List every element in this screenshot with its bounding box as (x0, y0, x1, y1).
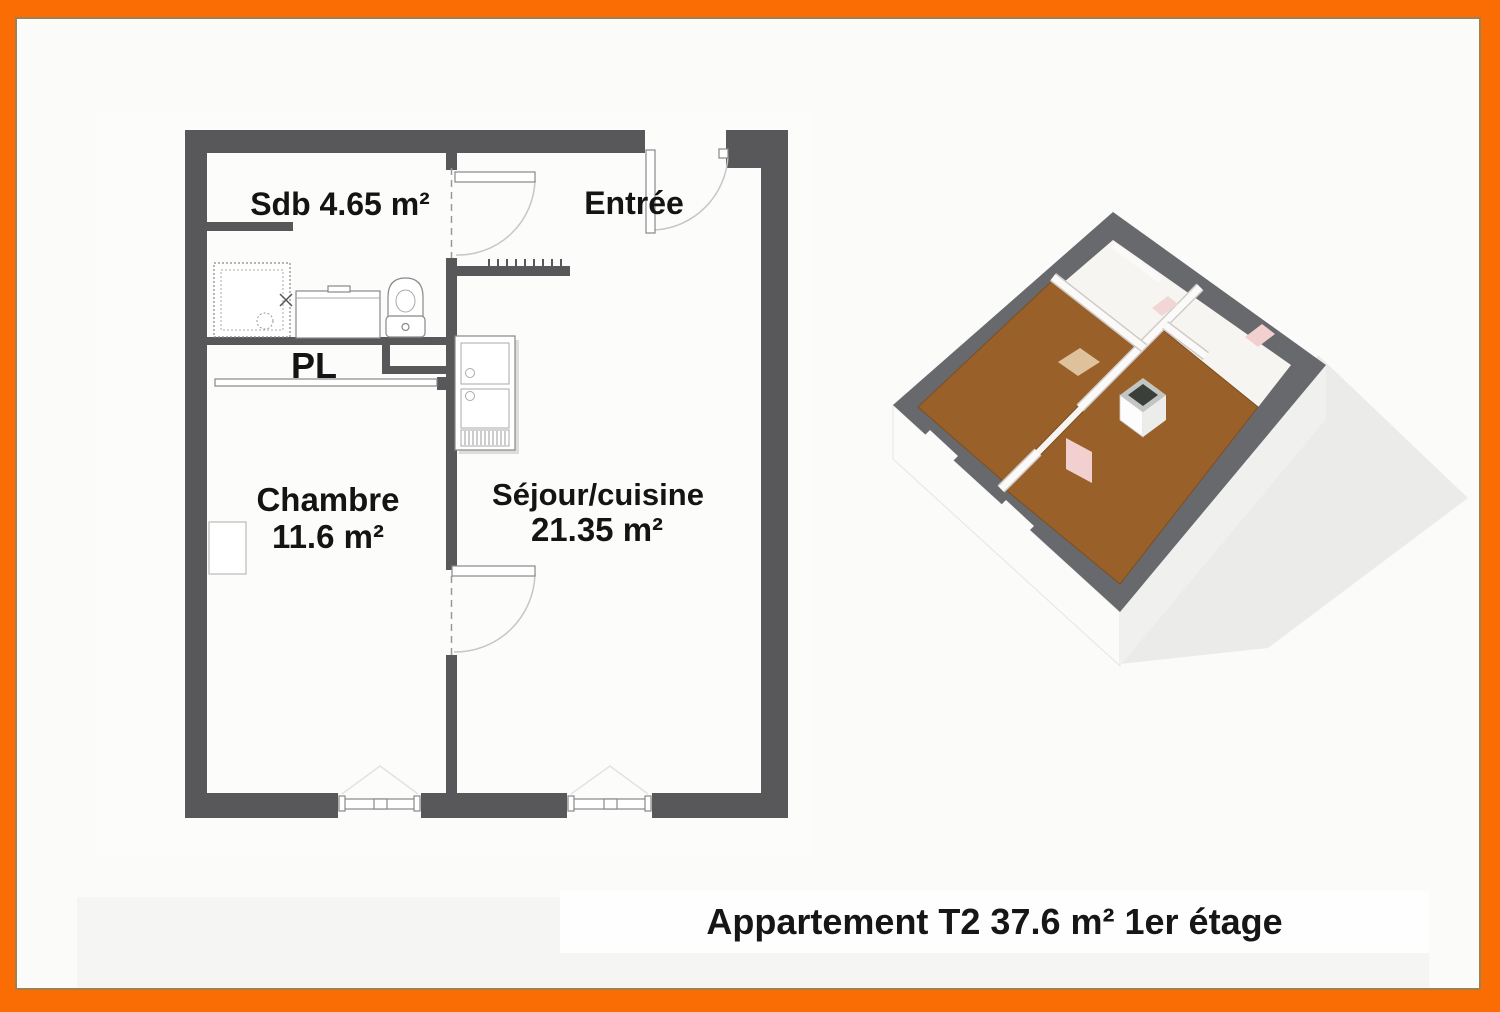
room-area-sejour: 21.35 m² (531, 511, 663, 548)
room-label-sejour: Séjour/cuisine (492, 477, 704, 512)
room-label-chambre: Chambre (256, 481, 399, 518)
toilet-icon (386, 278, 425, 337)
shower-icon (214, 263, 292, 337)
room-area-chambre: 11.6 m² (272, 518, 384, 555)
radiator-icon (209, 522, 246, 574)
fridge-icon (455, 336, 519, 454)
room-label-sdb: Sdb 4.65 m² (250, 186, 430, 222)
room-label-entree: Entrée (584, 185, 684, 221)
room-label-pl: PL (291, 345, 337, 386)
washbasin-icon (296, 286, 380, 338)
floor-plan-2d: Sdb 4.65 m² Entrée PL Chambre 11.6 m² Sé… (95, 112, 810, 857)
apartment-3d-view (893, 212, 1468, 666)
page-frame: Appartement T2 37.6 m² 1er étage (0, 0, 1500, 1012)
plan-graphics: Sdb 4.65 m² Entrée PL Chambre 11.6 m² Sé… (0, 0, 1500, 1012)
